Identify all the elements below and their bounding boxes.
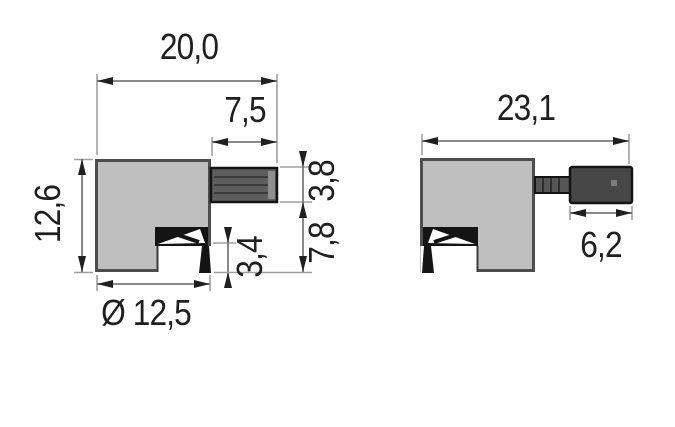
- arrowhead: [78, 159, 86, 175]
- arrowhead: [97, 280, 113, 288]
- dim-label-shaft-length: 7,5: [224, 92, 265, 128]
- arrowhead: [194, 280, 210, 288]
- drawing-canvas: [0, 0, 675, 427]
- arrowhead: [261, 138, 277, 146]
- left-shaft-endcap: [268, 171, 275, 199]
- dim-label-diameter: Ø 12,5: [101, 295, 191, 331]
- right-knob: [570, 167, 632, 203]
- dim-label-total-width-left: 20,0: [160, 29, 218, 65]
- arrowhead: [212, 138, 228, 146]
- dim-label-total-width-right: 23,1: [497, 90, 555, 126]
- arrowhead: [616, 209, 632, 217]
- technical-drawing: 20,0 7,5 12,6 Ø 12,5 3,4 3,8 7,8 23,1 6,…: [0, 0, 675, 427]
- right-knob-dot: [611, 180, 617, 186]
- arrowhead: [97, 77, 113, 85]
- left-view: [74, 74, 312, 291]
- dim-label-shaft-to-base: 7,8: [304, 222, 340, 263]
- arrowhead: [570, 209, 586, 217]
- arrowhead: [261, 77, 277, 85]
- arrowhead: [299, 202, 307, 218]
- dim-label-body-height: 12,6: [30, 185, 66, 243]
- dim-label-shaft-diameter: 3,8: [304, 160, 340, 201]
- dim-label-notch-height: 3,4: [232, 236, 268, 277]
- right-shaft: [535, 177, 570, 193]
- arrowhead: [78, 256, 86, 272]
- dim-label-knob-length: 6,2: [580, 227, 621, 263]
- arrowhead: [422, 137, 438, 145]
- arrowhead: [613, 137, 629, 145]
